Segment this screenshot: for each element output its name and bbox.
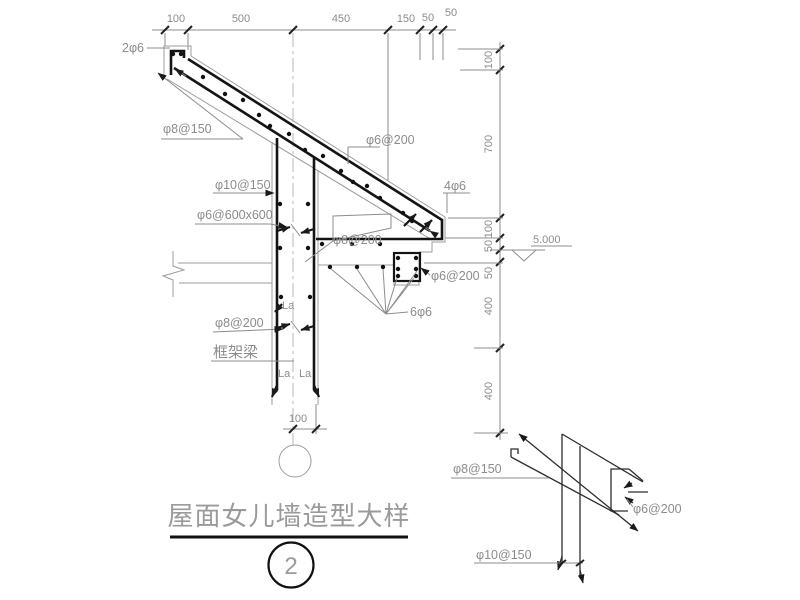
drawing-title: 屋面女儿墙造型大样 bbox=[167, 501, 410, 531]
label-wall-horizontal-bars: φ8@200 bbox=[215, 316, 264, 330]
elevation-marker: 5.000 bbox=[512, 234, 572, 261]
detail-slab-edge bbox=[562, 434, 643, 482]
dim-right-4: 50 bbox=[483, 240, 495, 252]
dim-right-5: 50 bbox=[483, 267, 495, 279]
break-line-icon bbox=[163, 251, 184, 297]
label-detail-bar-vertical: φ10@150 bbox=[476, 548, 532, 562]
top-dimension-chain: 100 500 450 150 50 50 bbox=[152, 7, 457, 180]
label-upturn-bars: 2φ6 bbox=[122, 41, 144, 55]
label-wall-mesh: φ6@600x600 bbox=[197, 208, 273, 222]
dim-extension-lines bbox=[165, 33, 443, 180]
dim-right-2: 700 bbox=[483, 135, 495, 153]
label-detail-bar-top: φ8@150 bbox=[453, 462, 502, 476]
detail-slope-bar bbox=[511, 457, 619, 515]
wall-bar-left-hook bbox=[272, 385, 277, 397]
dim-top-3: 450 bbox=[332, 13, 350, 25]
dim-right-3: 100 bbox=[483, 220, 495, 238]
label-wall-vertical-bars: φ10@150 bbox=[215, 178, 271, 192]
dim-right-7: 400 bbox=[483, 382, 495, 400]
lap-splice-lower bbox=[277, 321, 314, 333]
dim-wall-bottom: 100 bbox=[289, 413, 307, 425]
label-slope-main-bar: φ8@150 bbox=[163, 122, 212, 136]
label-corner-bars: 4φ6 bbox=[444, 179, 466, 193]
dim-top-5: 50 bbox=[422, 12, 434, 24]
parapet-detail-drawing: 100 500 450 150 50 50 100 bbox=[0, 0, 800, 600]
elevation-value: 5.000 bbox=[533, 234, 561, 246]
wall-bottom-dimension: 100 bbox=[283, 404, 327, 434]
label-lap-c: La bbox=[299, 368, 312, 380]
elevation-triangle-icon bbox=[512, 250, 536, 261]
label-detail-stirrup: φ6@200 bbox=[633, 502, 682, 516]
dim-top-2: 500 bbox=[232, 13, 250, 25]
dim-right-6: 400 bbox=[483, 297, 495, 315]
detail-number: 2 bbox=[284, 553, 297, 580]
title-block: 屋面女儿墙造型大样 2 bbox=[167, 501, 410, 588]
cad-canvas: 100 500 450 150 50 50 100 bbox=[0, 0, 800, 600]
label-lap-b: La bbox=[278, 368, 291, 380]
label-edge-beam-stirrup: φ6@200 bbox=[431, 269, 480, 283]
label-lap-a: La bbox=[282, 300, 295, 312]
axis-centerline bbox=[279, 33, 311, 477]
label-edge-beam-bars: 6φ6 bbox=[410, 305, 432, 319]
label-frame-beam: 框架梁 bbox=[213, 344, 258, 361]
right-dimension-chain: 100 700 100 50 50 400 400 bbox=[424, 42, 545, 440]
label-slope-distribution: φ6@200 bbox=[366, 133, 415, 147]
dim-right-1: 100 bbox=[483, 51, 495, 69]
dim-top-1: 100 bbox=[167, 13, 185, 25]
dim-top-4: 150 bbox=[397, 13, 415, 25]
grid-bubble bbox=[279, 445, 311, 477]
bar-shape-detail: φ8@150 φ10@150 φ6@200 bbox=[451, 434, 682, 583]
detail-bar-hook bbox=[511, 449, 518, 457]
label-slope-mid: φ8@200 bbox=[333, 233, 382, 247]
slope-main-bar bbox=[174, 68, 430, 231]
dim-top-6: 50 bbox=[445, 7, 457, 19]
concrete-outline bbox=[163, 46, 445, 405]
